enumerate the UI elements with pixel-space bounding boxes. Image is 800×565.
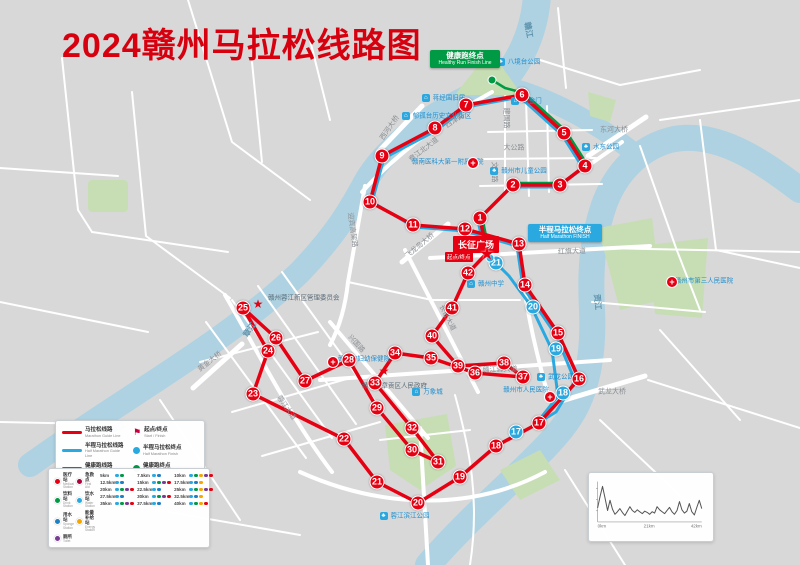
service-text: 饮水站Water Station [85,492,95,509]
service-en: Toilet [63,540,72,544]
half-finish-en: Half Marathon FINISH [532,235,598,241]
government-star-icon: ★ [379,365,390,377]
legend-en: Half Marathon Guide Line [85,449,127,458]
marathon-km-marker: 12 [458,222,473,237]
route-legend-point: 半程马拉松终点Half Marathon Finish [133,443,198,459]
hospital-icon: + [544,391,556,403]
route-line-swatch [62,431,82,434]
service-dot-icon [125,502,129,506]
marathon-km-marker: 9 [375,149,390,164]
marathon-km-marker: 11 [406,218,421,233]
marathon-km-marker: 23 [246,387,261,402]
marathon-km-marker: 8 [428,121,443,136]
marathon-km-marker: 35 [424,351,439,366]
marathon-km-marker: 18 [489,439,504,454]
park-icon: ♣ [582,143,590,151]
km-label: 20km [100,487,114,492]
route-legend-point: ⚑起点/终点Start / Finish [133,425,198,441]
landmark-icon: ⌂ [422,94,430,102]
marathon-km-marker: 27 [298,374,313,389]
service-dot-icon [157,488,161,492]
marathon-km-marker: 36 [468,366,483,381]
km-label: 32.5km [174,494,188,499]
km-service-point: 17.5km [174,480,213,485]
healthy-run-finish-label: 健康跑终点 Healthy Run Finish Line [430,50,500,68]
marathon-route-map: 1234567891011121314151617181920212223242… [0,0,800,565]
service-dot-icon [189,502,193,506]
hospital-label: 赣州市人民医院 [503,386,549,393]
marathon-km-marker: 3 [553,178,568,193]
government-star-icon: ★ [253,298,264,310]
marathon-km-marker: 30 [405,443,420,458]
km-service-point: 27.5km [100,494,134,499]
park-icon: ♣ [490,167,498,175]
marathon-km-marker: 2 [506,178,521,193]
marathon-km-marker: 5 [557,126,572,141]
elevation-profile-line [598,486,702,515]
marathon-km-marker: 6 [515,88,530,103]
half-marathon-km-marker: 20 [526,300,541,315]
start-finish-tag: 起点/终点 [445,252,473,262]
service-dot-icon [204,502,208,506]
half-marathon-km-marker: 17 [509,425,524,440]
marathon-km-marker: 31 [431,455,446,470]
km-label: 17.5km [174,480,188,485]
marathon-km-marker: 26 [269,331,284,346]
service-dot-icon [130,502,134,506]
street-label: 飞龙岛大桥 [404,232,435,260]
km-service-point: 10km [174,473,213,478]
service-dot-icon [199,502,203,506]
service-dot-icon [152,495,156,499]
service-dot-icon [199,495,203,499]
service-dot-icon [115,481,119,485]
street-label: 红旗大道 [558,248,586,256]
service-dot-icon [152,488,156,492]
marathon-km-marker: 14 [518,278,533,293]
service-text: 急救点First Aid [85,473,95,490]
service-icon [54,497,61,504]
km-label: 7.5km [137,473,151,478]
service-icon [54,535,61,542]
km-service-point: 40km [174,501,213,506]
marathon-km-marker: 28 [342,353,357,368]
service-dot-icon [194,474,198,478]
marathon-km-marker: 10 [363,195,378,210]
marathon-km-marker: 41 [445,301,460,316]
legend-en: Half Marathon Finish [143,452,182,457]
marathon-km-marker: 33 [368,376,383,391]
service-en: Sponge Station [63,523,74,530]
km-service-point: 12.5km [100,480,134,485]
km-service-point: 20km [100,487,134,492]
legend-zh: 马拉松线路 [85,427,120,434]
marathon-km-marker: 21 [370,475,385,490]
river-label: 贡江 [592,294,601,311]
service-dot-icon [157,474,161,478]
km-label: 22.5km [137,487,151,492]
service-legend-items: 医疗站Medical Station急救点First Aid饮料站Drink S… [54,473,95,543]
km-service-point: 5km [100,473,134,478]
legend-zh: 起点/终点 [144,427,168,434]
street-label: 黄金大桥 [197,351,223,374]
service-dot-icon [167,481,171,485]
street-label: 兴国路 [346,334,365,354]
landmark-icon: ⌂ [412,388,420,396]
landmark-icon: ⌂ [402,112,410,120]
service-icon [76,497,83,504]
service-en: First Aid [85,483,95,490]
service-text: 能量补给站Energy Station [85,511,95,533]
landmark-label: 蓉江滨江公园 [391,512,430,519]
half-marathon-km-marker: 19 [549,342,564,357]
marathon-km-marker: 40 [425,329,440,344]
service-dot-icon [189,495,193,499]
km-service-point: 7.5km [137,473,171,478]
route-legend-text: 起点/终点Start / Finish [144,427,168,438]
landmark-label: 八境台公园 [508,58,541,65]
service-dot-icon [167,495,171,499]
route-legend-line: 半程马拉松线路Half Marathon Guide Line [62,443,127,459]
service-dot-icon [199,474,203,478]
marathon-km-marker: 42 [461,266,476,281]
start-finish-star-icon: ★ [479,246,494,263]
service-zh: 能量补给站 [85,511,95,526]
km-service-point: 25km [174,487,213,492]
service-dot-icon [204,488,208,492]
legend-zh: 半程马拉松终点 [143,445,182,452]
service-text: 厕所Toilet [63,535,72,543]
service-en: Water Station [85,502,95,509]
service-dot-icon [152,481,156,485]
landmark-label: 水东公园 [593,143,619,150]
street-label: 蓉江大道 [275,395,297,422]
service-dot-icon [115,502,119,506]
healthy-run-finish-dot-icon [488,76,497,85]
park-icon: ♣ [537,373,545,381]
service-icon [54,478,61,485]
service-text: 饮料站Drink Station [63,492,74,509]
landmark-label: 赣州市儿童公园 [501,167,547,174]
service-dot-icon [204,474,208,478]
hospital-icon: + [666,276,678,288]
km-label: 27.5km [100,494,114,499]
km-service-point: 32.5km [174,494,213,499]
hospital-icon: + [327,356,339,368]
km-service-point: 30km [137,494,171,499]
marathon-km-marker: 15 [551,326,566,341]
marathon-km-marker: 20 [411,496,426,511]
half-marathon-km-marker: 18 [556,386,571,401]
km-label: 5km [100,473,114,478]
service-legend-item: 医疗站Medical Station [54,473,74,490]
elevation-tick-0: 0km [598,524,607,529]
marathon-km-marker: 38 [497,356,512,371]
service-dot-icon [162,481,166,485]
service-legend-item: 饮料站Drink Station [54,492,74,509]
km-label: 25km [174,487,188,492]
service-legend-item: 急救点First Aid [76,473,95,490]
service-dot-icon [115,488,119,492]
service-dot-icon [115,495,119,499]
street-label: 迎宾高架路 [346,212,358,248]
service-en: Medical Station [63,483,74,490]
km-service-point: 35km [100,501,134,506]
start-finish-flag-icon: ⚑ [133,428,141,437]
service-dot-icon [120,488,124,492]
service-icon [76,478,83,485]
marathon-km-marker: 17 [532,416,547,431]
service-legend-item: 饮水站Water Station [76,492,95,509]
hospital-icon: + [467,157,479,169]
service-legend-item: 能量补给站Energy Station [76,511,95,533]
street-label: 武龙大桥 [598,389,626,396]
service-dot-icon [162,495,166,499]
marathon-km-marker: 1 [473,211,488,226]
service-dot-icon [120,495,124,499]
service-dot-icon [189,481,193,485]
service-dot-icon [152,502,156,506]
service-icon [54,518,61,525]
service-dot-icon [199,481,203,485]
service-dot-icon [194,488,198,492]
km-service-grid: 5km7.5km10km12.5km15km17.5km20km22.5km25… [100,473,213,543]
route-line-swatch [62,449,82,452]
finish-dot-icon [133,447,140,454]
marathon-km-marker: 16 [572,372,587,387]
service-dot-icon [194,495,198,499]
landmark-label: 郁孤台历史文化街区 [413,112,472,119]
km-label: 15km [137,480,151,485]
service-dot-icon [120,474,124,478]
landmark-icon: ⌂ [467,280,475,288]
service-text: 医疗站Medical Station [63,473,74,490]
street-label: 大公路 [504,145,525,152]
river-label: 章江 [242,321,258,339]
marathon-km-marker: 37 [516,370,531,385]
service-dot-icon [120,481,124,485]
landmark-label: 武龙公园 [548,373,574,380]
route-legend-line: 马拉松线路Marathon Guide Line [62,425,127,441]
service-dot-icon [157,502,161,506]
elevation-tick-2: 42km [691,524,702,529]
service-dot-icon [125,488,129,492]
service-dot-icon [130,488,134,492]
km-label: 12.5km [100,480,114,485]
legend-zh: 半程马拉松线路 [85,443,127,450]
marathon-km-marker: 7 [459,98,474,113]
legend-en: Marathon Guide Line [85,434,120,439]
marathon-km-marker: 4 [578,159,593,174]
river-label: 赣江 [523,21,534,38]
service-text: 用水站Sponge Station [63,513,74,530]
service-dot-icon [152,474,156,478]
landmark-label: 万象城 [423,388,443,395]
marathon-km-marker: 24 [261,344,276,359]
service-dot-icon [199,488,203,492]
service-dot-icon [157,495,161,499]
marathon-km-marker: 34 [388,346,403,361]
route-legend-text: 半程马拉松线路Half Marathon Guide Line [85,443,127,459]
marathon-km-marker: 13 [512,237,527,252]
legend-en: Start / Finish [144,434,168,439]
street-label: 建国路 [503,108,510,129]
service-dot-icon [157,481,161,485]
service-dot-icon [115,474,119,478]
park-icon: ♣ [380,512,388,520]
service-dot-icon [209,474,213,478]
service-dot-icon [120,502,124,506]
street-label: 西河大桥 [379,115,401,142]
km-service-point: 15km [137,480,171,485]
km-label: 10km [174,473,188,478]
km-label: 35km [100,501,114,506]
elevation-chart: 0km 21km 42km [588,472,714,542]
elevation-chart-svg: 0km 21km 42km [592,476,704,532]
service-dot-icon [189,488,193,492]
km-service-point: 22.5km [137,487,171,492]
marathon-km-marker: 29 [370,401,385,416]
route-legend-text: 马拉松线路Marathon Guide Line [85,427,120,438]
km-label: 37.5km [137,501,151,506]
page-title: 2024赣州马拉松线路图 [62,18,422,67]
marathon-km-marker: 32 [405,421,420,436]
km-label: 30km [137,494,151,499]
marathon-km-marker: 19 [453,470,468,485]
half-marathon-finish-label: 半程马拉松终点 Half Marathon FINISH [528,224,602,242]
service-legend-item: 用水站Sponge Station [54,511,74,533]
healthy-finish-en: Healthy Run Finish Line [434,61,496,67]
service-en: Drink Station [63,502,74,509]
km-label: 40km [174,501,188,506]
km-service-point: 37.5km [137,501,171,506]
service-dot-icon [189,474,193,478]
hospital-label: 赣州市第三人民医院 [675,277,734,284]
service-dot-icon [194,481,198,485]
elevation-tick-1: 21km [644,524,655,529]
service-dot-icon [209,488,213,492]
landmark-label: 赣州中学 [478,280,504,287]
street-label: 东河大桥 [600,127,628,134]
marathon-km-marker: 39 [451,359,466,374]
service-legend-item: 厕所Toilet [54,535,74,543]
marathon-km-marker: 22 [337,432,352,447]
service-en: Energy Station [85,526,95,533]
marathon-km-marker: 25 [236,301,251,316]
government-label: 赣州蓉江新区管理委员会 [268,294,332,301]
service-dot-icon [194,502,198,506]
service-icon [76,518,83,525]
service-legend: 医疗站Medical Station急救点First Aid饮料站Drink S… [48,468,210,548]
route-legend-text: 半程马拉松终点Half Marathon Finish [143,445,182,456]
